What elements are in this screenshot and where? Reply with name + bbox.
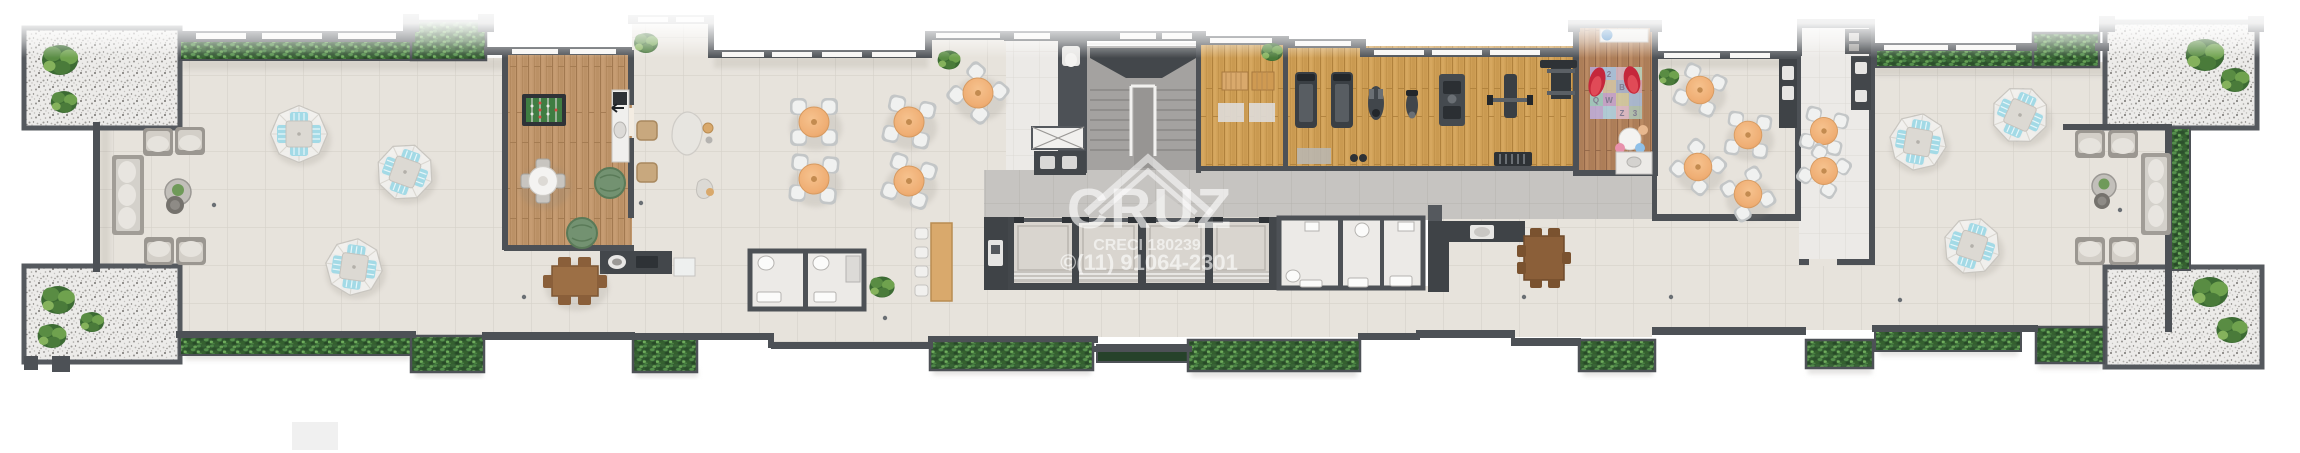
svg-text:Z: Z — [1620, 109, 1625, 118]
svg-text:W: W — [1605, 96, 1613, 105]
svg-text:©(11) 91064-2301: ©(11) 91064-2301 — [1060, 250, 1238, 275]
svg-text:Q: Q — [1593, 96, 1599, 105]
svg-text:B: B — [1619, 83, 1625, 92]
svg-text:3: 3 — [1633, 109, 1638, 118]
svg-text:CRUZ: CRUZ — [1067, 177, 1233, 241]
svg-text:2: 2 — [1607, 70, 1612, 79]
